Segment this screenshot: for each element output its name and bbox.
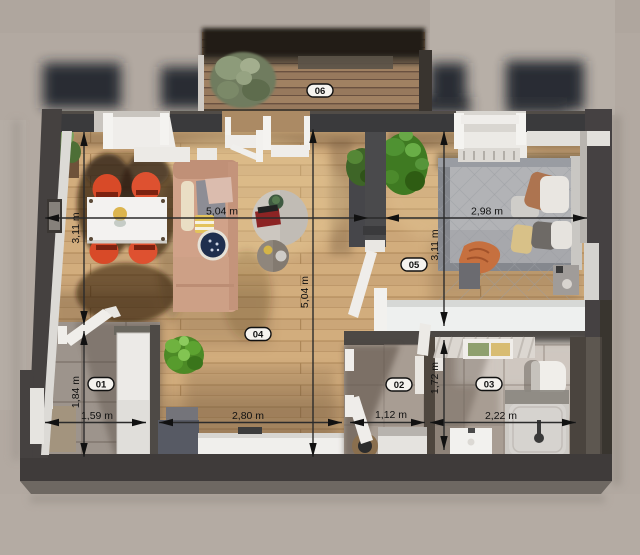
svg-text:3,11 m: 3,11 m (429, 229, 441, 261)
svg-text:04: 04 (253, 330, 264, 341)
svg-text:1,59 m: 1,59 m (81, 410, 113, 422)
svg-text:1,84 m: 1,84 m (70, 376, 82, 408)
svg-text:03: 03 (484, 380, 495, 391)
svg-text:1,12 m: 1,12 m (375, 409, 407, 421)
svg-text:06: 06 (315, 86, 326, 97)
svg-text:1,72 m: 1,72 m (429, 362, 441, 394)
svg-text:2,22 m: 2,22 m (485, 410, 517, 422)
svg-text:05: 05 (409, 260, 420, 271)
svg-text:3,11 m: 3,11 m (70, 212, 82, 244)
svg-text:2,98 m: 2,98 m (471, 206, 503, 218)
svg-text:5,04 m: 5,04 m (299, 276, 311, 308)
svg-text:2,80 m: 2,80 m (232, 410, 264, 422)
svg-text:02: 02 (394, 380, 405, 391)
svg-text:5,04 m: 5,04 m (206, 206, 238, 218)
svg-text:01: 01 (96, 380, 107, 391)
